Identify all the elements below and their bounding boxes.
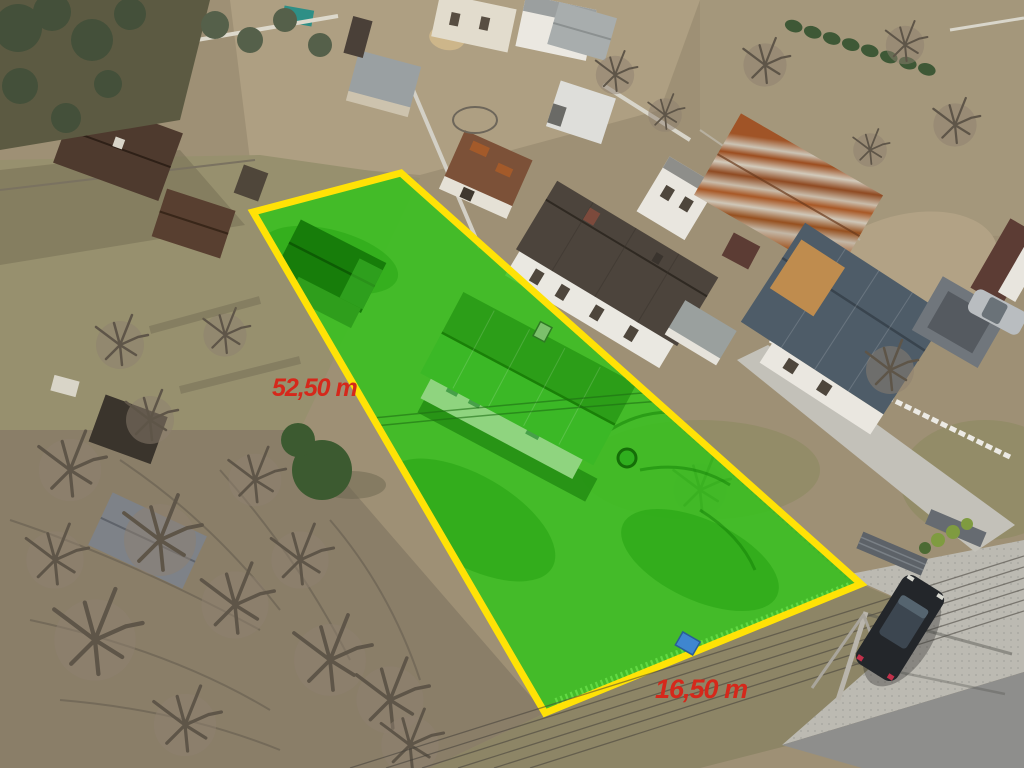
- plot-width-label: 16,50 m: [655, 674, 747, 704]
- aerial-photo: 52,50 m 16,50 m: [0, 0, 1024, 768]
- plot-length-label: 52,50 m: [272, 374, 358, 402]
- well: [618, 449, 636, 467]
